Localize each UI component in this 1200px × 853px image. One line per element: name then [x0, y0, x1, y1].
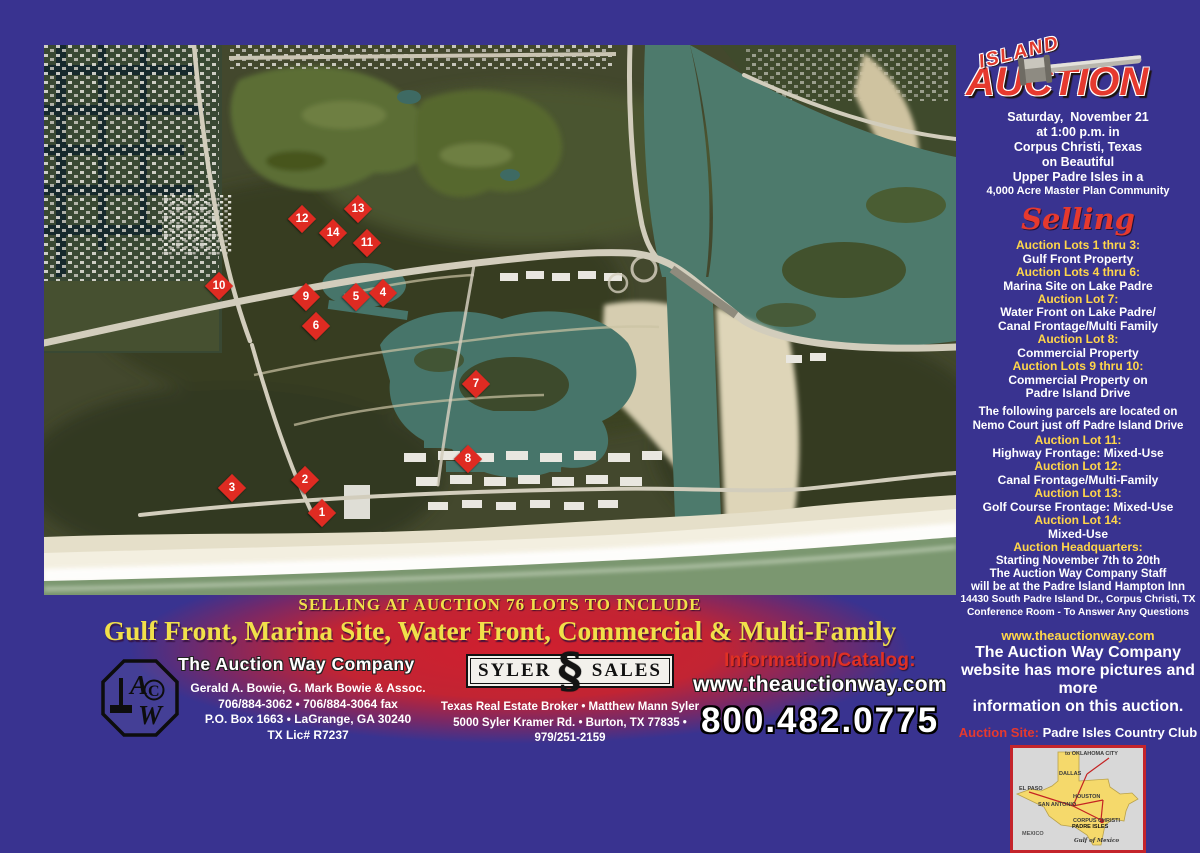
banner-line-2: Gulf Front, Marina Site, Water Front, Co…	[44, 615, 956, 647]
lot-marker-number: 9	[296, 287, 316, 307]
acw-contact-line: Gerald A. Bowie, G. Mark Bowie & Assoc.	[178, 681, 438, 697]
syler-sales-logo: SYLER § SALES	[466, 654, 674, 688]
lot-marker-number: 12	[292, 209, 312, 229]
auction-lot-group: Auction Lot 14:Mixed-Use	[952, 514, 1200, 541]
acw-contact-lines: Gerald A. Bowie, G. Mark Bowie & Assoc.7…	[178, 681, 438, 743]
texas-city-label: EL PASO	[1019, 786, 1043, 792]
texas-city-label: HOUSTON	[1073, 794, 1100, 800]
lot-marker-number: 14	[323, 223, 343, 243]
lot-marker-number: 4	[373, 283, 393, 303]
texas-city-label: PADRE ISLES	[1072, 824, 1108, 830]
auction-lot-group: Auction Lot 12:Canal Frontage/Multi-Fami…	[952, 460, 1200, 487]
auction-lot-title: Auction Lot 14:	[952, 514, 1200, 527]
texas-city-label: Gulf of Mexico	[1074, 838, 1119, 844]
syler-scroll-icon: §	[557, 643, 582, 699]
nemo-note-line: The following parcels are located on	[952, 406, 1200, 420]
headquarters-title: Auction Headquarters:	[952, 541, 1200, 554]
lot-marker-number: 2	[295, 470, 315, 490]
event-date-line: at 1:00 p.m. in	[952, 125, 1200, 140]
lot-marker-5: 5	[342, 283, 370, 311]
auction-lot-desc: Canal Frontage/Multi Family	[952, 320, 1200, 333]
auction-lot-title: Auction Lots 1 thru 3:	[952, 239, 1200, 252]
nemo-court-note: The following parcels are located onNemo…	[952, 406, 1200, 433]
auction-headquarters: Auction Headquarters:Starting November 7…	[952, 541, 1200, 619]
lot-marker-8: 8	[454, 445, 482, 473]
sales-word: SALES	[592, 660, 662, 682]
syler-contact-lines: Texas Real Estate Broker • Matthew Mann …	[430, 700, 710, 747]
acw-contact-line: TX Lic# R7237	[178, 728, 438, 744]
headquarters-line: Conference Room - To Answer Any Question…	[952, 607, 1200, 619]
auction-lot-desc: Golf Course Frontage: Mixed-Use	[952, 501, 1200, 514]
lot-marker-number: 7	[466, 374, 486, 394]
lot-marker-3: 3	[218, 474, 246, 502]
headquarters-line: will be at the Padre Island Hampton Inn	[952, 581, 1200, 594]
lot-marker-number: 3	[222, 478, 242, 498]
auction-lot-desc: Marina Site on Lake Padre	[952, 280, 1200, 293]
event-date-line: 4,000 Acre Master Plan Community	[952, 185, 1200, 198]
footer: A C W The Auction Way Company Gerald A. …	[0, 648, 1200, 778]
auction-lot-group: Auction Lot 7:Water Front on Lake Padre/…	[952, 293, 1200, 333]
lot-marker-6: 6	[302, 312, 330, 340]
auction-way-company-block: The Auction Way Company Gerald A. Bowie,…	[178, 654, 438, 743]
acw-company-name: The Auction Way Company	[178, 654, 438, 675]
banner-line-1: SELLING AT AUCTION 76 LOTS TO INCLUDE	[44, 596, 956, 615]
auction-lot-desc: Padre Island Drive	[952, 387, 1200, 400]
lot-marker-number: 13	[348, 199, 368, 219]
lot-marker-1: 1	[308, 499, 336, 527]
texas-city-label: MEXICO	[1022, 831, 1044, 837]
acw-contact-line: 706/884-3062 • 706/884-3064 fax	[178, 697, 438, 713]
selling-list-2: Auction Lot 11:Highway Frontage: Mixed-U…	[952, 434, 1200, 542]
auction-lot-desc: Water Front on Lake Padre/	[952, 306, 1200, 319]
lot-marker-9: 9	[292, 283, 320, 311]
event-date-line: Corpus Christi, Texas	[952, 140, 1200, 155]
auction-lot-title: Auction Lot 7:	[952, 293, 1200, 306]
aerial-photo-illustration	[44, 45, 956, 595]
headquarters-line: Starting November 7th to 20th	[952, 555, 1200, 568]
auction-lot-title: Auction Lots 4 thru 6:	[952, 266, 1200, 279]
lot-marker-11: 11	[353, 229, 381, 257]
auction-lot-title: Auction Lot 11:	[952, 434, 1200, 447]
lot-marker-number: 8	[458, 449, 478, 469]
website-url-link[interactable]: www.theauctionway.com	[952, 628, 1200, 644]
auction-lot-desc: Commercial Property	[952, 347, 1200, 360]
auction-lot-desc: Highway Frontage: Mixed-Use	[952, 447, 1200, 460]
auction-lot-title: Auction Lots 9 thru 10:	[952, 360, 1200, 373]
auction-lot-title: Auction Lot 8:	[952, 333, 1200, 346]
contact-block: Information/Catalog: www.theauctionway.c…	[690, 650, 950, 741]
lot-marker-7: 7	[462, 370, 490, 398]
auction-lot-group: Auction Lot 8:Commercial Property	[952, 333, 1200, 360]
svg-text:C: C	[148, 683, 160, 700]
auction-lot-desc: Commercial Property on	[952, 374, 1200, 387]
lot-marker-number: 1	[312, 503, 332, 523]
headquarters-line: 14430 South Padre Island Dr., Corpus Chr…	[952, 594, 1200, 606]
lot-marker-number: 6	[306, 316, 326, 336]
selling-heading: Selling	[952, 205, 1200, 234]
nemo-note-line: Nemo Court just off Padre Island Drive	[952, 420, 1200, 434]
footer-website-link[interactable]: www.theauctionway.com	[690, 673, 950, 697]
auction-lot-group: Auction Lot 13:Golf Course Frontage: Mix…	[952, 487, 1200, 514]
event-date-line: Upper Padre Isles in a	[952, 170, 1200, 185]
auction-lot-group: Auction Lots 1 thru 3:Gulf Front Propert…	[952, 239, 1200, 266]
lot-marker-13: 13	[344, 195, 372, 223]
event-date-block: Saturday, November 21at 1:00 p.m. inCorp…	[952, 110, 1200, 198]
banner: SELLING AT AUCTION 76 LOTS TO INCLUDE Gu…	[44, 596, 956, 646]
island-auction-logo: AUCTION ISLAND	[952, 44, 1200, 108]
lot-marker-4: 4	[369, 279, 397, 307]
phone-number: 800.482.0775	[690, 701, 950, 741]
syler-sales-block: SYLER § SALES Texas Real Estate Broker •…	[430, 654, 710, 747]
auction-lot-group: Auction Lots 4 thru 6:Marina Site on Lak…	[952, 266, 1200, 293]
syler-contact-line: Texas Real Estate Broker • Matthew Mann …	[430, 700, 710, 716]
syler-word: SYLER	[478, 660, 551, 682]
texas-city-label: SAN ANTONIO	[1038, 802, 1076, 808]
aerial-map: 1234567891011121314	[44, 45, 956, 595]
lot-marker-14: 14	[319, 219, 347, 247]
auction-lot-desc: Canal Frontage/Multi-Family	[952, 474, 1200, 487]
auction-lot-title: Auction Lot 12:	[952, 460, 1200, 473]
acw-octagon-logo: A C W	[98, 656, 182, 740]
information-catalog-label: Information/Catalog:	[690, 650, 950, 672]
auction-lot-group: Auction Lots 9 thru 10:Commercial Proper…	[952, 360, 1200, 400]
headquarters-line: The Auction Way Company Staff	[952, 568, 1200, 581]
lot-marker-12: 12	[288, 205, 316, 233]
auction-lot-title: Auction Lot 13:	[952, 487, 1200, 500]
lot-marker-number: 5	[346, 287, 366, 307]
lot-marker-2: 2	[291, 466, 319, 494]
lot-marker-10: 10	[205, 272, 233, 300]
lot-marker-number: 10	[209, 276, 229, 296]
lot-marker-number: 11	[357, 233, 377, 253]
auction-lot-desc: Mixed-Use	[952, 528, 1200, 541]
auction-lot-desc: Gulf Front Property	[952, 253, 1200, 266]
gavel-icon	[1000, 48, 1150, 88]
selling-list-1: Auction Lots 1 thru 3:Gulf Front Propert…	[952, 239, 1200, 400]
acw-contact-line: P.O. Box 1663 • LaGrange, GA 30240	[178, 712, 438, 728]
svg-text:W: W	[138, 700, 164, 730]
syler-contact-line: 5000 Syler Kramer Rd. • Burton, TX 77835…	[430, 716, 710, 747]
event-date-line: Saturday, November 21	[952, 110, 1200, 125]
event-date-line: on Beautiful	[952, 155, 1200, 170]
auction-lot-group: Auction Lot 11:Highway Frontage: Mixed-U…	[952, 434, 1200, 461]
